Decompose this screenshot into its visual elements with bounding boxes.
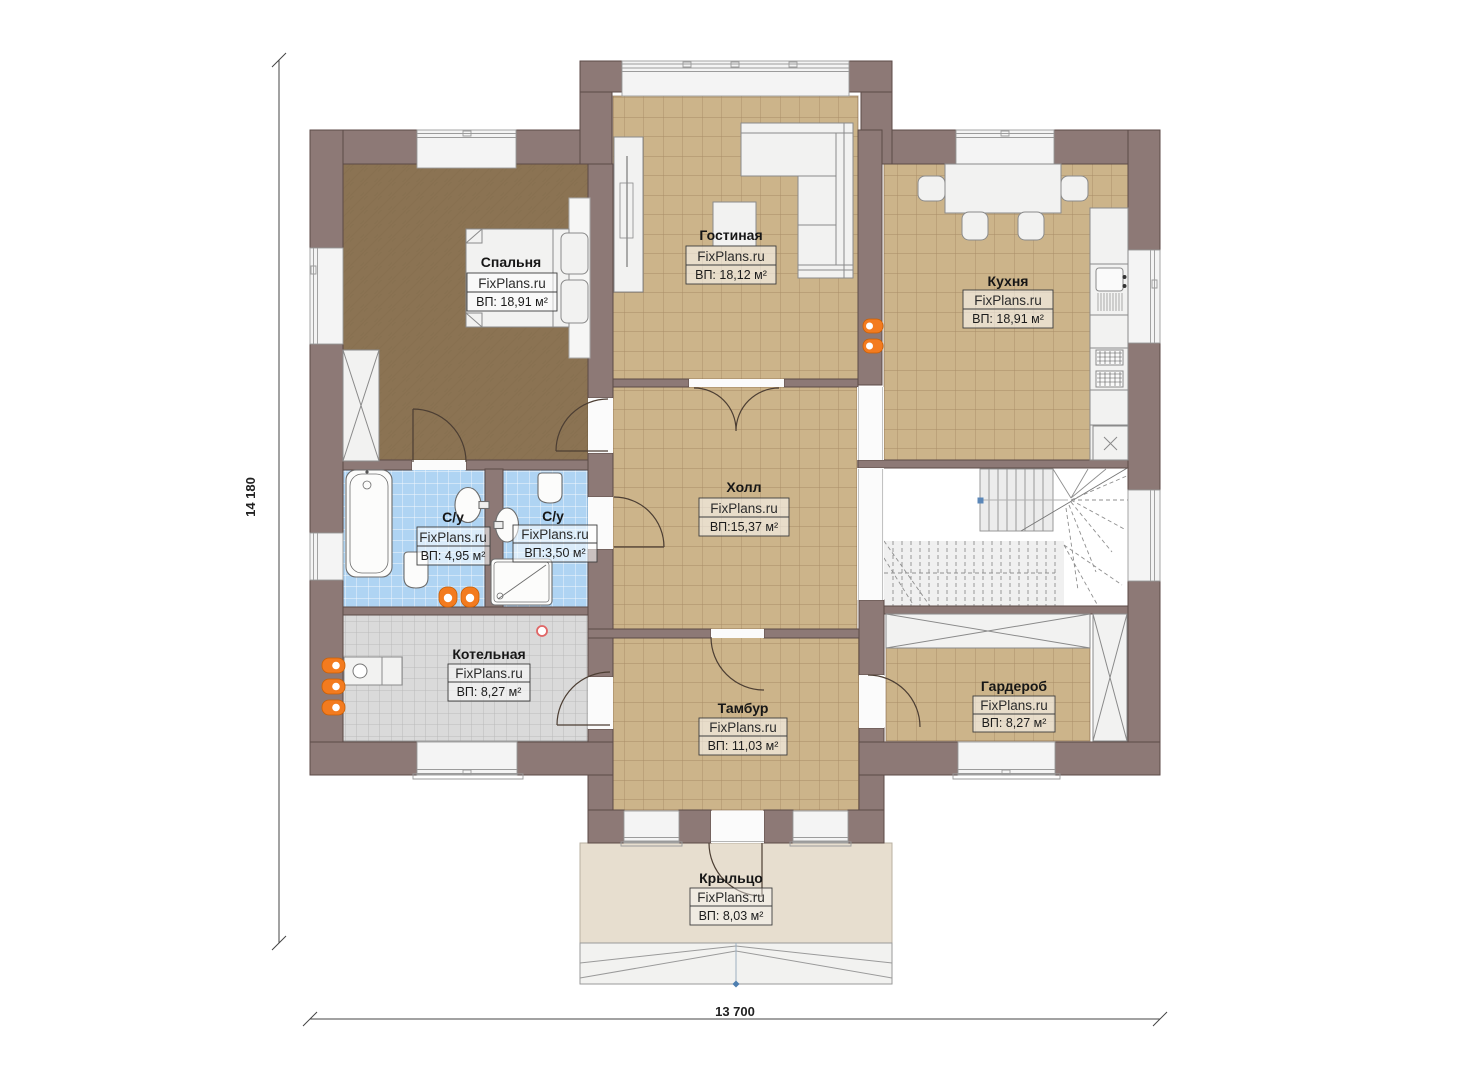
svg-text:С/у: С/у: [542, 508, 564, 524]
svg-text:ВП: 11,03 м²: ВП: 11,03 м²: [708, 739, 779, 753]
svg-text:С/у: С/у: [442, 509, 464, 525]
svg-text:FixPlans.ru: FixPlans.ru: [709, 720, 777, 735]
svg-text:ВП: 8,03 м²: ВП: 8,03 м²: [699, 909, 764, 923]
svg-text:Холл: Холл: [726, 479, 761, 495]
svg-text:ВП: 8,27 м²: ВП: 8,27 м²: [457, 685, 522, 699]
svg-text:Спальня: Спальня: [481, 254, 541, 270]
svg-text:Тамбур: Тамбур: [718, 700, 769, 716]
svg-text:Котельная: Котельная: [452, 646, 525, 662]
svg-text:FixPlans.ru: FixPlans.ru: [697, 249, 765, 264]
svg-text:ВП: 8,27 м²: ВП: 8,27 м²: [982, 716, 1047, 730]
svg-text:Гостиная: Гостиная: [699, 227, 762, 243]
svg-text:FixPlans.ru: FixPlans.ru: [974, 293, 1042, 308]
svg-text:FixPlans.ru: FixPlans.ru: [697, 890, 765, 905]
svg-text:FixPlans.ru: FixPlans.ru: [478, 276, 546, 291]
svg-text:ВП:3,50 м²: ВП:3,50 м²: [524, 546, 585, 560]
svg-text:13 700: 13 700: [715, 1004, 755, 1019]
svg-text:Кухня: Кухня: [988, 273, 1029, 289]
svg-text:FixPlans.ru: FixPlans.ru: [710, 501, 778, 516]
svg-text:FixPlans.ru: FixPlans.ru: [980, 698, 1048, 713]
svg-text:ВП: 4,95 м²: ВП: 4,95 м²: [421, 549, 486, 563]
svg-text:ВП: 18,91 м²: ВП: 18,91 м²: [972, 312, 1044, 326]
svg-text:FixPlans.ru: FixPlans.ru: [419, 530, 487, 545]
svg-text:Гардероб: Гардероб: [981, 678, 1048, 694]
svg-text:FixPlans.ru: FixPlans.ru: [455, 666, 523, 681]
svg-text:FixPlans.ru: FixPlans.ru: [521, 527, 589, 542]
svg-text:ВП: 18,91 м²: ВП: 18,91 м²: [476, 295, 548, 309]
svg-text:ВП: 18,12 м²: ВП: 18,12 м²: [695, 268, 767, 282]
svg-text:14 180: 14 180: [243, 477, 258, 517]
svg-text:ВП:15,37 м²: ВП:15,37 м²: [710, 520, 778, 534]
svg-text:Крыльцо: Крыльцо: [699, 870, 763, 886]
